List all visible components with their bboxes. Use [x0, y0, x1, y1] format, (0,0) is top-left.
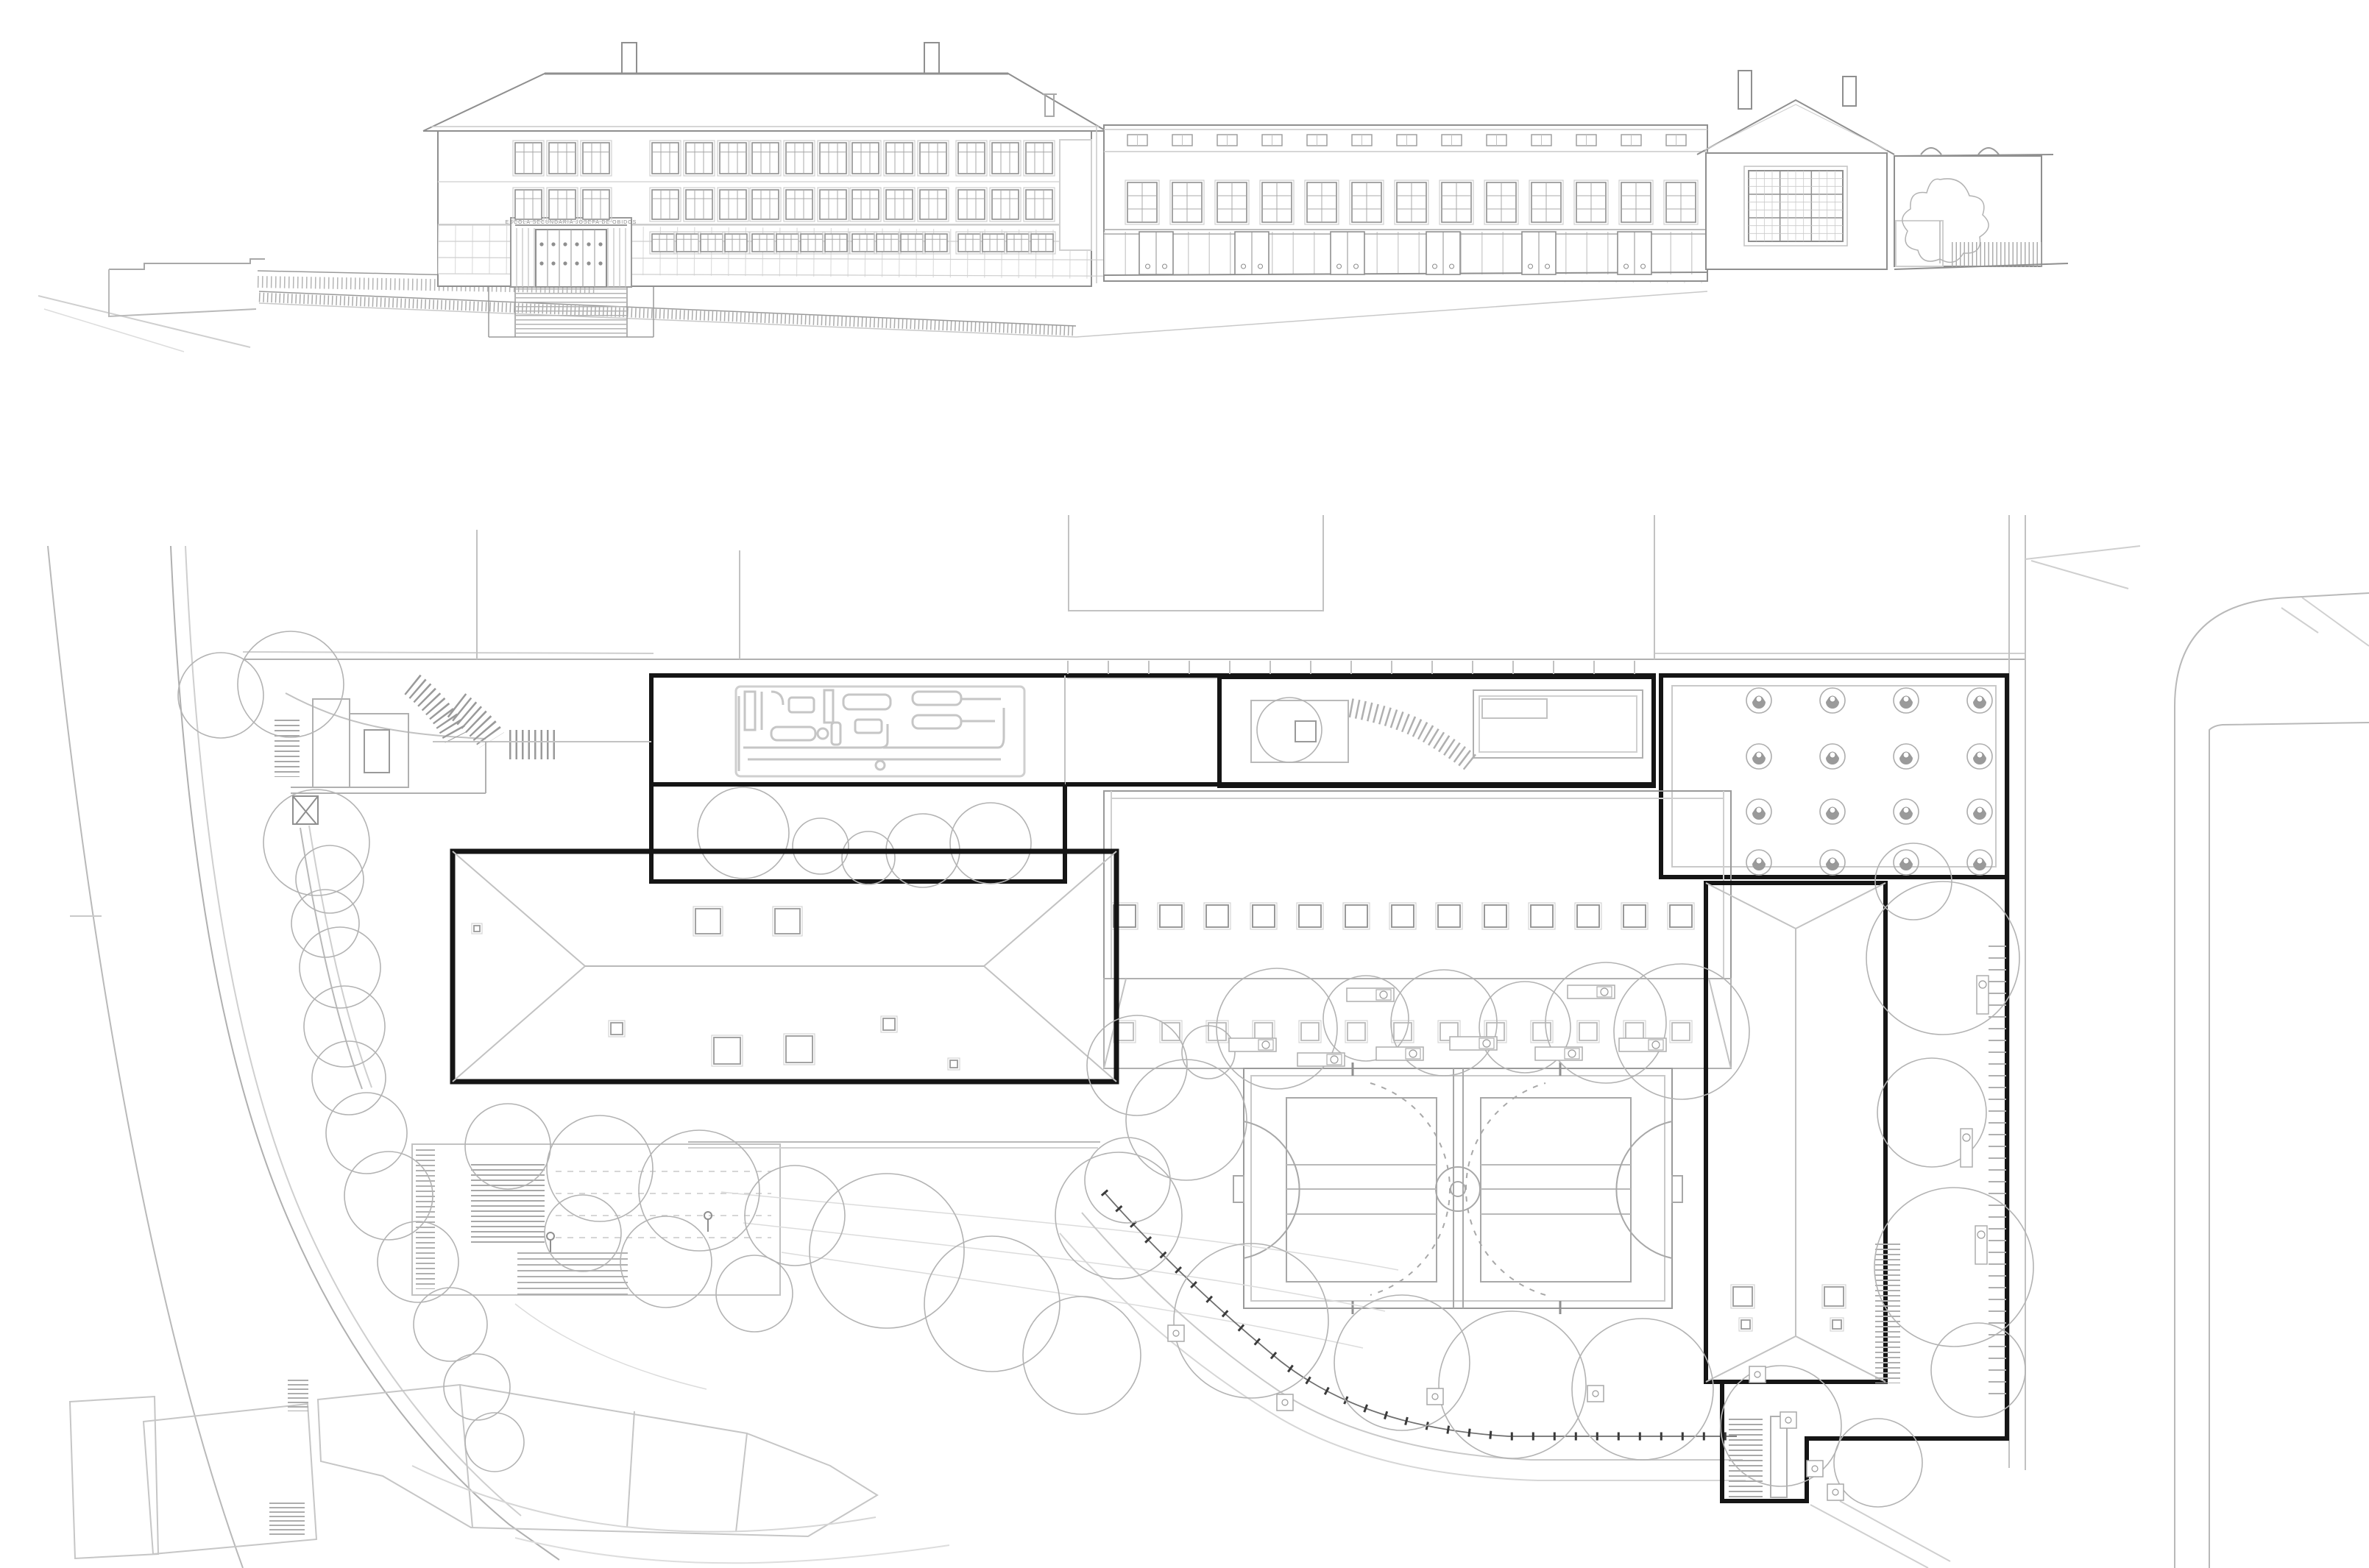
window: [1026, 190, 1052, 219]
litter-bin: [1168, 1325, 1184, 1341]
entry-court-block: [1219, 677, 1654, 786]
service-block: [651, 667, 1654, 784]
skylight: [775, 909, 800, 934]
site-plan: [48, 515, 2369, 1568]
bench: [1535, 1047, 1582, 1060]
window: [901, 234, 923, 252]
window: [549, 190, 576, 219]
window: [720, 190, 746, 219]
gym-roof-plan: [1706, 883, 1888, 1383]
litter-bin: [1807, 1461, 1823, 1477]
tree: [547, 1115, 653, 1221]
litter-bin: [1780, 1412, 1796, 1428]
skylight: [1672, 1023, 1690, 1040]
litter-bin: [1749, 1366, 1766, 1383]
skylight: [1531, 905, 1553, 927]
tree: [1334, 1295, 1470, 1430]
skylight: [695, 909, 720, 934]
window: [801, 234, 823, 252]
skylight: [1206, 905, 1228, 927]
sports-court: [1233, 1063, 1682, 1314]
tree: [1055, 1152, 1182, 1279]
chimney: [1843, 77, 1856, 106]
tree: [620, 1216, 712, 1308]
skylight: [1577, 905, 1599, 927]
window: [982, 234, 1005, 252]
window: [825, 234, 847, 252]
tree: [414, 1288, 487, 1361]
skylight: [1670, 905, 1692, 927]
canopy: [1473, 690, 1643, 758]
tree: [1087, 1015, 1187, 1115]
window: [877, 234, 899, 252]
window: [752, 143, 779, 174]
east-boundary: [1722, 877, 2007, 1568]
main-roof-plan: [453, 851, 1116, 1082]
skylight: [883, 1018, 895, 1030]
tree: [238, 631, 344, 737]
window: [776, 234, 798, 252]
tree: [1257, 698, 1322, 762]
window: [958, 190, 985, 219]
window: [958, 234, 980, 252]
window: [676, 234, 698, 252]
skylight: [611, 1023, 623, 1035]
window: [852, 234, 874, 252]
chimney: [622, 43, 637, 74]
skylight: [950, 1060, 957, 1068]
window: [1031, 234, 1053, 252]
skylight: [1579, 1023, 1597, 1040]
skylight: [1299, 905, 1321, 927]
tree: [1931, 1323, 2025, 1417]
service-garden: [651, 784, 1065, 887]
skylight: [474, 926, 480, 932]
gate: [293, 796, 318, 824]
chimney: [924, 43, 939, 74]
entrance-inscription: ESCOLA SECUNDARIA JOSEFA DE OBIDOS: [506, 220, 637, 225]
tree: [263, 790, 369, 895]
tree: [793, 818, 849, 874]
window: [992, 190, 1019, 219]
skylight: [1394, 1023, 1412, 1040]
skylight: [1484, 905, 1506, 927]
ramp-wall-hatch: [259, 297, 1076, 331]
nw-corner-garden: [286, 684, 651, 1089]
annex-elevation: [1894, 148, 2068, 269]
fence-posts: [1104, 1192, 1737, 1436]
tree: [378, 1221, 458, 1302]
corner-fan-steps: [456, 705, 492, 740]
skylight: [1392, 905, 1414, 927]
wing-roof-plan: [1104, 791, 1731, 1068]
gym-window: [1744, 166, 1847, 246]
window: [549, 143, 576, 174]
window: [786, 143, 812, 174]
plaza-tree-grid: [1746, 688, 1992, 875]
skylight: [1741, 1320, 1750, 1329]
street-elevation: ESCOLA SECUNDARIA JOSEFA DE OBIDOS: [38, 43, 2068, 352]
tree: [1023, 1296, 1141, 1414]
window: [886, 190, 913, 219]
hvac-plant: [736, 687, 1024, 776]
bench: [1975, 1226, 1987, 1264]
gym-pavilion-elevation: [1697, 71, 1894, 269]
tree: [545, 1195, 621, 1271]
window: [820, 143, 846, 174]
litter-bin: [1277, 1394, 1293, 1411]
litter-bin: [1827, 1484, 1844, 1500]
window: [925, 234, 947, 252]
chimney: [1738, 71, 1752, 109]
window: [652, 190, 679, 219]
skylight: [1832, 1320, 1841, 1329]
skylight: [1160, 905, 1182, 927]
window: [1026, 143, 1052, 174]
window: [820, 190, 846, 219]
tree: [810, 1174, 964, 1328]
street-kerb-west: [171, 546, 559, 1560]
tree-plaza: [1661, 675, 2007, 877]
tree: [465, 1104, 550, 1189]
window: [920, 190, 946, 219]
tree: [326, 1093, 407, 1174]
tree: [1085, 1138, 1170, 1223]
tree: [1126, 1060, 1247, 1180]
tree: [291, 890, 359, 957]
bench: [1619, 1038, 1666, 1051]
skylight: [1345, 905, 1367, 927]
planter: [1251, 700, 1348, 762]
entrance-portal: ESCOLA SECUNDARIA JOSEFA DE OBIDOS: [506, 218, 637, 287]
roof-vents: [1921, 148, 1999, 155]
skylight: [1162, 1023, 1180, 1040]
tree: [716, 1255, 793, 1332]
tree: [950, 803, 1031, 884]
running-track: [2175, 593, 2369, 1568]
window: [752, 234, 774, 252]
litter-bin: [1587, 1386, 1604, 1402]
wing-skylights: [1111, 903, 1694, 1043]
litter-bin: [1427, 1388, 1443, 1405]
skylight: [1301, 1023, 1319, 1040]
skylight: [1438, 905, 1460, 927]
benches: [1229, 976, 1989, 1264]
tree: [1545, 962, 1666, 1083]
window: [701, 234, 723, 252]
window: [515, 143, 542, 174]
window: [686, 190, 712, 219]
skylight: [1733, 1287, 1752, 1306]
service-block-outline: [651, 675, 1654, 784]
tree: [296, 845, 364, 913]
south-path-trees: [1055, 1152, 1922, 1507]
skylight: [786, 1036, 812, 1063]
curved-ramp-steps: [1350, 708, 1472, 764]
street-trees: [178, 631, 524, 1472]
tree: [465, 1413, 524, 1472]
streets-and-boundaries: [48, 515, 2369, 1568]
pool: [364, 730, 389, 773]
drawing-sheet: ESCOLA SECUNDARIA JOSEFA DE OBIDOS: [0, 0, 2369, 1568]
window: [720, 143, 746, 174]
window: [652, 143, 679, 174]
bench: [1568, 985, 1615, 998]
window: [725, 234, 747, 252]
window: [515, 190, 542, 219]
garden-terrace: [412, 1142, 1100, 1296]
architectural-drawing: ESCOLA SECUNDARIA JOSEFA DE OBIDOS: [0, 0, 2369, 1568]
bench: [1961, 1129, 1972, 1167]
neighbour-buildings: [70, 1380, 949, 1563]
window: [992, 143, 1019, 174]
gym-roof-skylights: [1731, 1285, 1846, 1331]
skylight: [1824, 1287, 1844, 1306]
window: [886, 143, 913, 174]
window: [583, 143, 609, 174]
window: [583, 190, 609, 219]
tree: [178, 653, 263, 738]
window: [852, 143, 879, 174]
window: [852, 190, 879, 219]
tree: [300, 927, 380, 1008]
tree: [1834, 1419, 1922, 1507]
window: [652, 234, 674, 252]
skylight: [1348, 1023, 1365, 1040]
window: [920, 143, 946, 174]
window: [752, 190, 779, 219]
window: [958, 143, 985, 174]
courtyard-trees: [1085, 962, 1749, 1223]
bench: [1977, 976, 1989, 1014]
window: [686, 143, 712, 174]
classroom-wing-elevation: [1097, 125, 1707, 283]
window: [1007, 234, 1029, 252]
tree: [698, 787, 789, 879]
skylight: [1253, 905, 1275, 927]
window: [786, 190, 812, 219]
service-garden-trees: [698, 787, 1031, 887]
entry-court-tree: [1257, 698, 1322, 762]
skylight: [714, 1037, 740, 1064]
skylight: [1623, 905, 1646, 927]
